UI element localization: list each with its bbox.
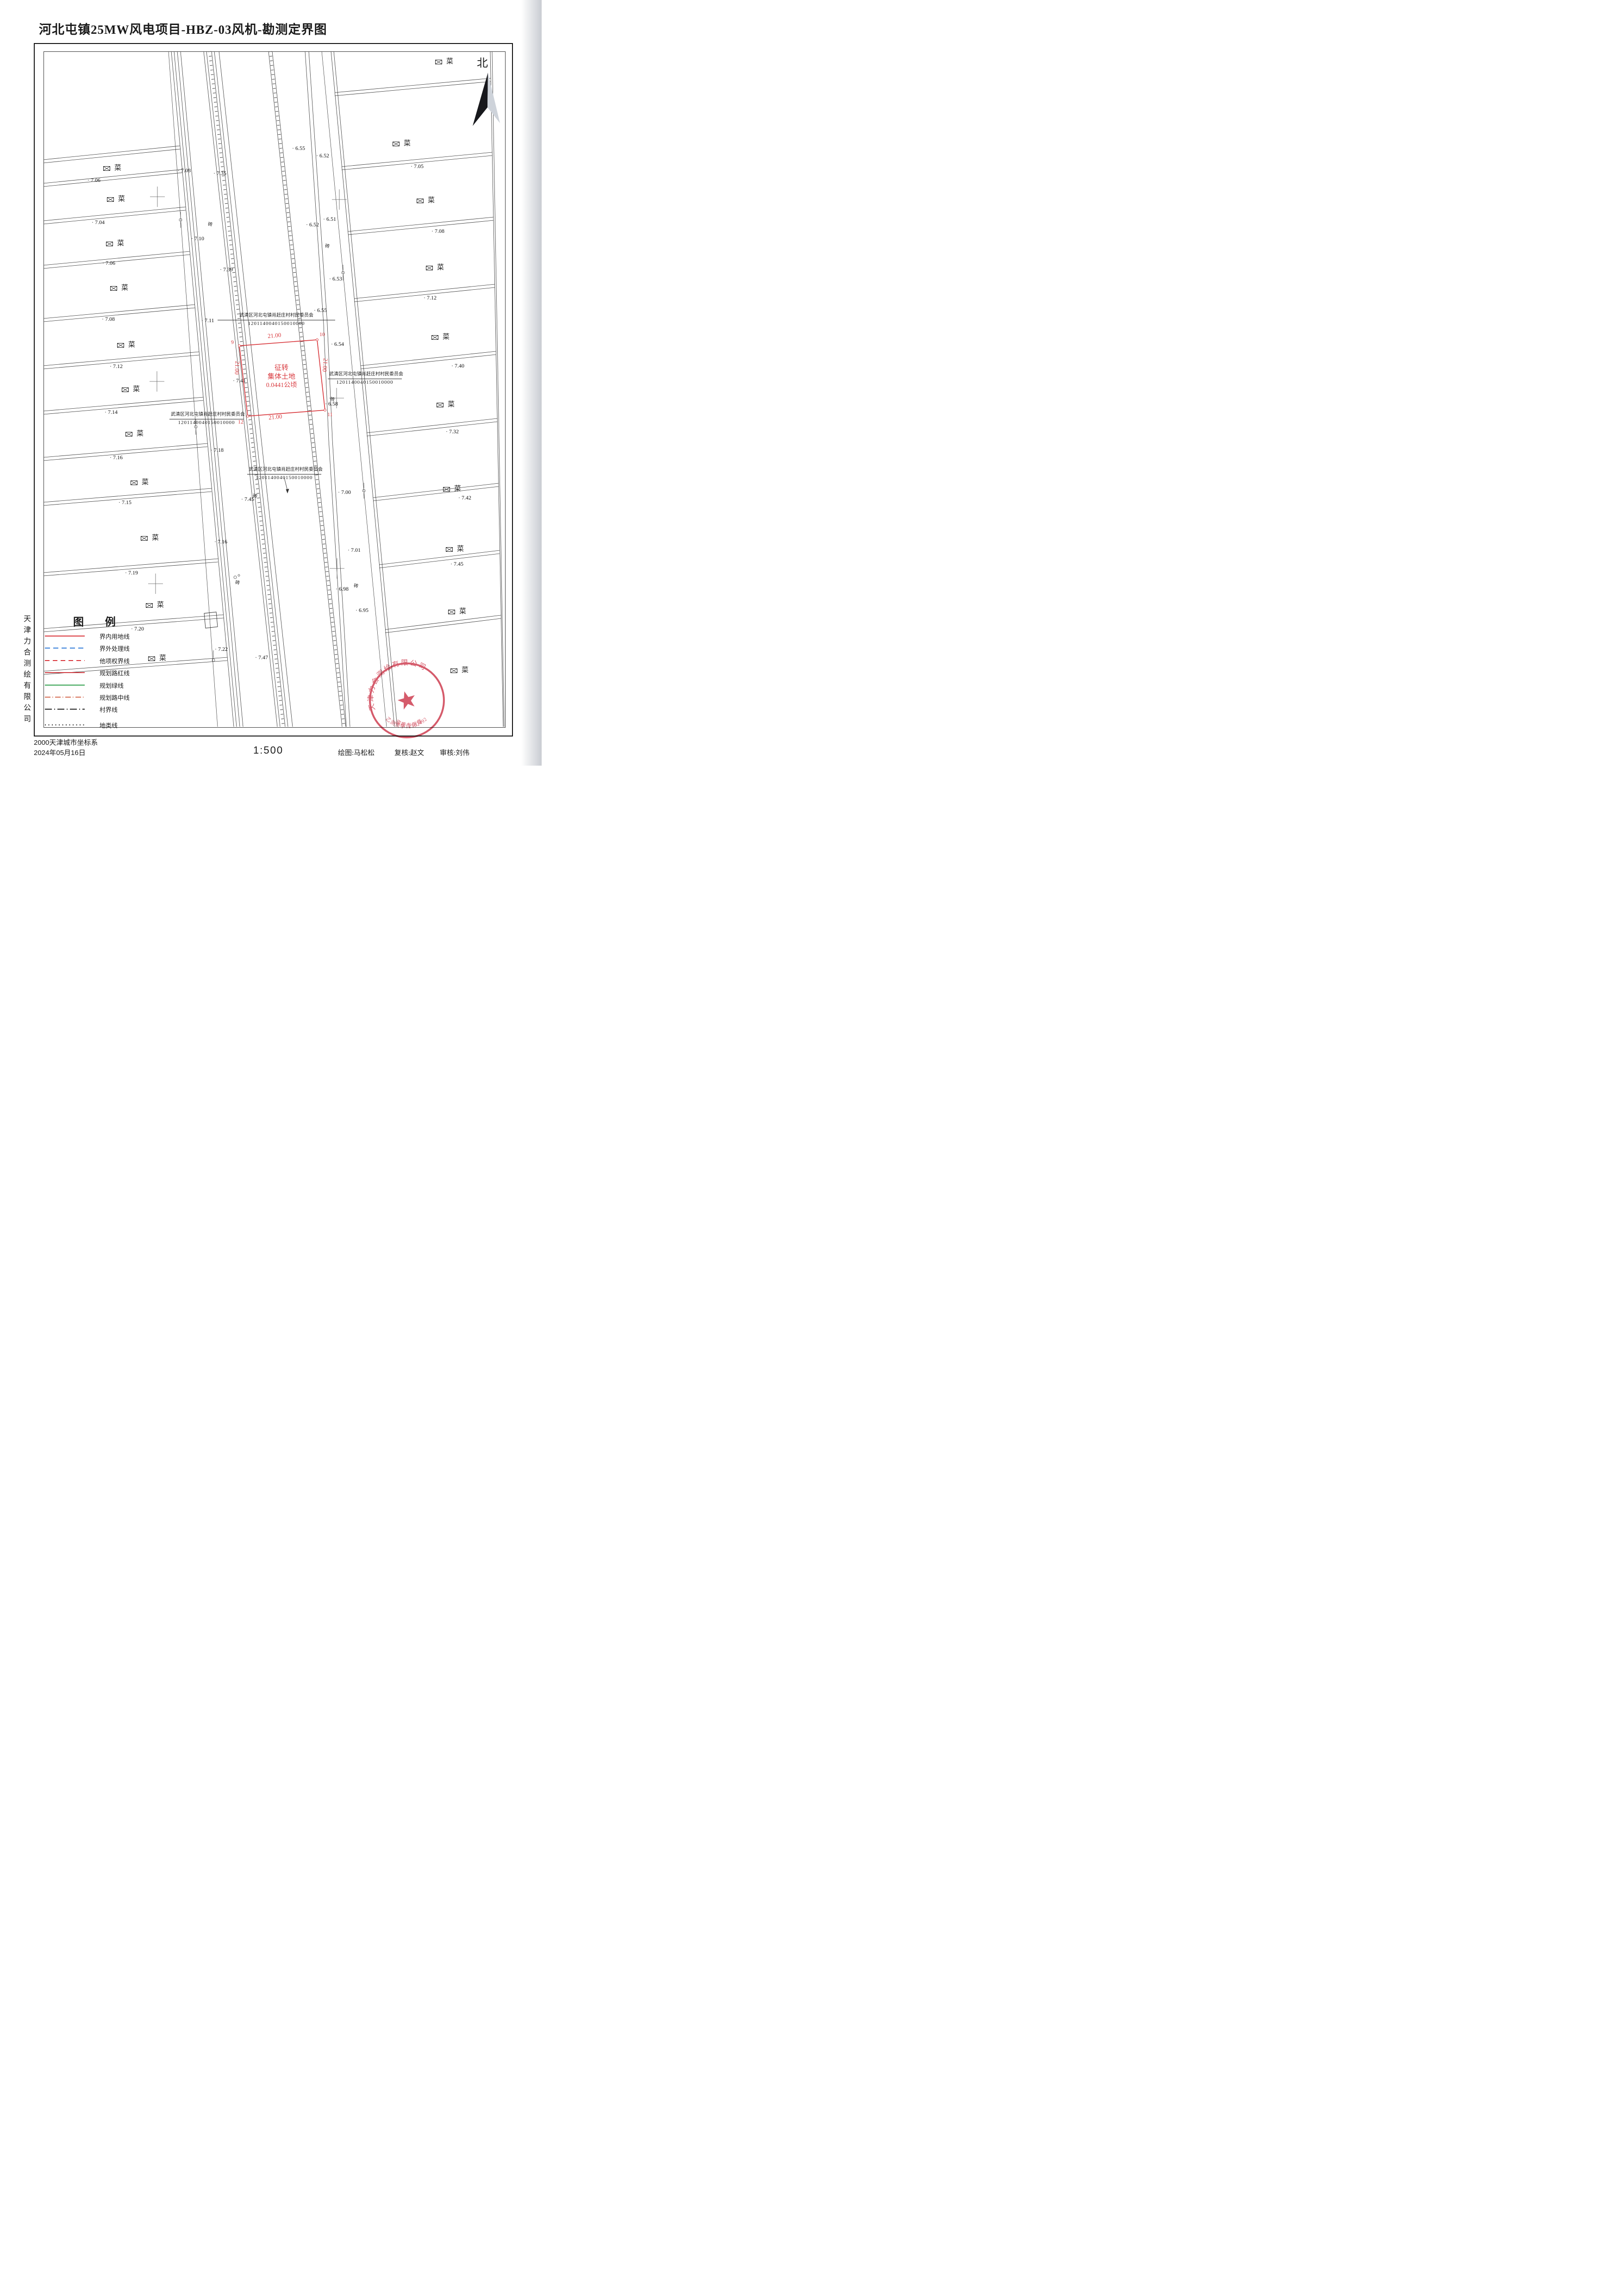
legend-row: 规划路中线 <box>45 693 130 701</box>
parcel-landuse-symbol-icon <box>148 656 155 661</box>
legend-label: 规划绿线 <box>100 681 124 690</box>
owner-parcel-code: 1201140040150010000 <box>169 419 244 426</box>
landuse-text: 菜 <box>448 401 455 408</box>
owner-parcel-code: 1201140040150010000 <box>328 379 402 386</box>
parcel-landuse-symbol-icon <box>131 480 137 485</box>
north-label: 北 <box>477 54 488 70</box>
legend-line-blue-dashed-icon <box>45 648 85 649</box>
landuse-text: 菜 <box>446 58 453 65</box>
legend-line-village-boundary-icon <box>45 709 85 709</box>
vegetable-parcel-label: 菜 <box>450 667 468 674</box>
spot-height-label: · 7.00 <box>338 489 351 495</box>
owner-annotation-right: 武清区河北屯镇肖赶庄村村民委员会 1201140040150010000 <box>328 372 402 386</box>
brick-surface-label: 砖 <box>330 397 335 402</box>
spot-height-label: · 7.16 <box>110 455 123 460</box>
landuse-text: 菜 <box>152 535 159 542</box>
parcel-landuse-symbol-icon <box>125 432 132 437</box>
spot-height-label: · 7.08 <box>178 168 191 173</box>
parcel-landuse-symbol-icon <box>431 335 438 340</box>
vegetable-parcel-label: 菜 <box>426 264 444 271</box>
brick-surface-label: 砖 <box>235 580 240 586</box>
corner-point-12: 12 <box>238 419 244 424</box>
vegetable-parcel-label: 菜 <box>148 655 166 662</box>
owner-annotation-left: 武清区河北屯镇肖赶庄村村民委员会 1201140040150010000 <box>169 412 244 426</box>
legend-label: 规划路中线 <box>100 693 130 702</box>
legend-line-red-solid-icon <box>45 636 85 636</box>
spot-height-label: · 7.01 <box>348 547 361 553</box>
parcel-landuse-symbol-icon <box>435 60 442 64</box>
landuse-text: 菜 <box>142 479 149 486</box>
spot-height-label: · 7.35 <box>213 170 226 176</box>
vegetable-parcel-label: 菜 <box>446 546 464 553</box>
legend-label: 界内用地线 <box>100 632 130 641</box>
landuse-text: 菜 <box>157 602 164 609</box>
spot-height-label: · 7.12 <box>424 295 437 300</box>
spot-height-label: · 7.06 <box>102 260 115 266</box>
dimension-right: 21.00 <box>322 358 329 372</box>
vegetable-parcel-label: 菜 <box>448 608 466 615</box>
vegetable-parcel-label: 菜 <box>141 535 159 542</box>
vegetable-parcel-label: 菜 <box>107 196 125 203</box>
map-scale: 1:500 <box>253 744 283 756</box>
legend-line-landtype-dotted-icon <box>45 724 85 725</box>
corner-point-11: 11 <box>327 412 333 417</box>
landuse-text: 菜 <box>159 655 166 662</box>
vegetable-parcel-label: 菜 <box>437 401 455 408</box>
dimension-top: 21.00 <box>267 332 281 339</box>
north-arrow-icon <box>473 73 500 126</box>
owner-annotation-bottom: 武清区河北屯镇肖赶庄村村民委员会 1201140040150010000 <box>247 467 321 481</box>
parcel-landuse-symbol-icon <box>103 166 110 171</box>
spot-height-label: · 7.16 <box>214 539 227 544</box>
spot-height-label: · 7.08 <box>102 316 115 322</box>
spot-height-label: · 7.11 <box>201 318 214 323</box>
landuse-text: 菜 <box>121 285 128 292</box>
seal-star-icon <box>396 689 418 711</box>
parcel-landuse-symbol-icon <box>117 343 124 348</box>
spot-height-label: · 7.05 <box>411 163 424 169</box>
spot-height-label: · 7.19 <box>125 570 138 575</box>
spot-height-label: · 6.52 <box>306 222 319 227</box>
parcel-landuse-symbol-icon <box>448 610 455 614</box>
spot-height-label: · 6.51 <box>323 216 336 222</box>
brick-surface-label: 砖 <box>353 584 358 589</box>
parcel-landuse-symbol-icon <box>110 286 117 291</box>
parcel-landuse-symbol-icon <box>106 242 113 246</box>
parcel-landuse-symbol-icon <box>122 387 129 392</box>
legend-row: 地类线 <box>45 721 118 729</box>
vegetable-parcel-label: 菜 <box>122 386 140 393</box>
legend-line-green-icon <box>45 685 85 686</box>
owner-name: 武清区河北屯镇肖赶庄村村民委员会 <box>247 467 321 474</box>
legend-line-red-dashed-icon <box>45 660 85 661</box>
spot-height-label: · 7.14 <box>105 409 118 415</box>
legend-label: 界外处理线 <box>100 644 130 653</box>
vegetable-parcel-label: 菜 <box>110 285 128 292</box>
scanned-survey-map-page: { "title": "河北屯镇25MW风电项目-HBZ-03风机-勘测定界图"… <box>0 0 542 766</box>
brick-surface-label: 砖 <box>252 494 257 499</box>
landuse-text: 菜 <box>137 430 144 437</box>
landuse-text: 菜 <box>117 240 124 247</box>
vegetable-parcel-label: 菜 <box>131 479 149 486</box>
landuse-text: 菜 <box>437 264 444 271</box>
spot-height-label: · 7.06 <box>87 177 100 183</box>
legend-title: 图 例 <box>73 613 125 629</box>
spot-height-label: · 6.55 <box>292 145 305 151</box>
parcel-area-value: 0.0441公顷 <box>257 381 306 390</box>
spot-height-label: · 7.39 <box>220 267 233 272</box>
spot-height-label: · 6.55 <box>314 307 327 313</box>
spot-height-label: · 6.54 <box>331 341 344 347</box>
drafter-credit: 绘图:马松松 <box>338 748 375 757</box>
parcel-landuse-symbol-icon <box>141 536 148 541</box>
grid-cross-marks <box>148 187 347 594</box>
parcel-landuse-symbol-icon <box>437 403 443 407</box>
owner-name: 武清区河北屯镇肖赶庄村村民委员会 <box>169 412 244 419</box>
legend-line-road-center-icon <box>45 697 85 697</box>
parcel-label-line2: 集体土地 <box>257 373 306 381</box>
legend-row: 界内用地线 <box>45 632 130 640</box>
surveying-company-sidebar: 天津力合测绘有限公司 <box>20 615 31 726</box>
parcel-landuse-symbol-icon <box>446 547 453 552</box>
owner-name: 武清区河北屯镇肖赶庄村村民委员会 <box>328 372 402 379</box>
parcel-landuse-symbol-icon <box>450 668 457 673</box>
spot-height-label: · 7.04 <box>92 219 105 225</box>
checker-credit: 复核:赵文 <box>394 748 424 757</box>
spot-height-label: · 7.08 <box>431 228 444 234</box>
spot-height-label: · 7.45 <box>450 561 463 567</box>
legend-label: 地类线 <box>100 721 118 730</box>
corner-point-10: 10 <box>319 331 325 337</box>
legend-row: 界外处理线 <box>45 644 130 652</box>
legend-label: 他项权界线 <box>100 656 130 665</box>
owner-annotation-top: 武清区河北屯镇肖赶庄村村民委员会 1201140040150010000 <box>218 313 335 327</box>
parcel-landuse-symbol-icon <box>146 603 153 608</box>
landuse-text: 菜 <box>454 486 461 493</box>
vegetable-parcel-label: 菜 <box>443 486 461 493</box>
vegetable-parcel-label: 菜 <box>431 334 450 341</box>
legend-row: 村界线 <box>45 705 118 713</box>
corner-point-9: 9 <box>231 339 234 345</box>
spot-height-label: · 6.52 <box>316 153 329 158</box>
spot-height-label: · 6.95 <box>356 607 369 613</box>
spot-height-label: · 7.10 <box>191 236 204 241</box>
map-date: 2024年05月16日 <box>34 748 86 757</box>
spot-height-label: · 7.18 <box>211 447 224 453</box>
spot-height-label: · 6.53 <box>329 276 342 281</box>
vegetable-parcel-label: 菜 <box>125 430 144 437</box>
spot-height-label: · 7.20 <box>131 626 144 631</box>
vegetable-parcel-label: 菜 <box>417 197 435 204</box>
spot-height-label: · 7.32 <box>446 429 459 434</box>
brick-surface-label: 砖 <box>325 244 330 249</box>
legend-row: 他项权界线 <box>45 657 130 664</box>
landuse-text: 菜 <box>114 165 121 172</box>
spot-height-label: · 6.98 <box>336 586 349 592</box>
spot-height-label: · 7.42 <box>458 495 471 500</box>
landuse-text: 菜 <box>404 140 411 147</box>
owner-parcel-code: 1201140040150010000 <box>218 320 335 327</box>
parcel-landuse-symbol-icon <box>426 266 433 270</box>
legend-row: 规划绿线 <box>45 681 124 689</box>
brick-surface-label: 砖 <box>207 222 212 227</box>
vegetable-parcel-label: 菜 <box>393 140 411 147</box>
building-outline <box>204 612 218 628</box>
parcel-label-line1: 征转 <box>257 364 306 373</box>
spot-height-label: · 7.47 <box>255 655 268 660</box>
dimension-bottom: 21.00 <box>268 413 282 420</box>
spot-height-label: · 7.12 <box>110 363 123 369</box>
parcel-landuse-symbol-icon <box>417 199 424 203</box>
vegetable-parcel-label: 菜 <box>146 602 164 609</box>
legend-line-red-thin-icon <box>45 672 85 673</box>
legend-label: 村界线 <box>100 705 118 714</box>
vegetable-parcel-label: 菜 <box>106 240 124 247</box>
legend-row: 规划路红线 <box>45 669 130 676</box>
parcel-landuse-symbol-icon <box>107 197 114 202</box>
parcel-landuse-symbol-icon <box>393 142 400 146</box>
landuse-text: 菜 <box>462 667 468 674</box>
spot-height-label: · 7.22 <box>215 646 228 652</box>
reviewer-credit: 审核:刘伟 <box>440 748 469 757</box>
landuse-text: 菜 <box>428 197 435 204</box>
dimension-left: 21.00 <box>234 361 241 375</box>
spot-height-label: · 7.40 <box>451 363 464 368</box>
landuse-text: 菜 <box>128 342 135 349</box>
spot-height-label: · 7.15 <box>119 499 131 505</box>
spot-height-label: · 7.41 <box>233 378 246 383</box>
legend-label: 规划路红线 <box>100 668 130 677</box>
landuse-text: 菜 <box>133 386 140 393</box>
parcel-center-label: 征转 集体土地 0.0441公顷 <box>257 364 306 390</box>
parcel-landuse-symbol-icon <box>443 487 450 492</box>
vegetable-parcel-label: 菜 <box>103 165 121 172</box>
seal-type-text: 资质专用章 <box>394 712 425 733</box>
landuse-text: 菜 <box>457 546 464 553</box>
landuse-text: 菜 <box>459 608 466 615</box>
vegetable-parcel-label: 菜 <box>435 58 453 65</box>
vegetable-parcel-label: 菜 <box>117 342 135 349</box>
coordinate-system-note: 2000天津城市坐标系 <box>34 737 98 747</box>
owner-parcel-code: 1201140040150010000 <box>247 474 321 481</box>
owner-name: 武清区河北屯镇肖赶庄村村民委员会 <box>218 313 335 320</box>
landuse-text: 菜 <box>443 334 450 341</box>
road-and-canal-lines <box>169 51 504 727</box>
landuse-text: 菜 <box>118 196 125 203</box>
